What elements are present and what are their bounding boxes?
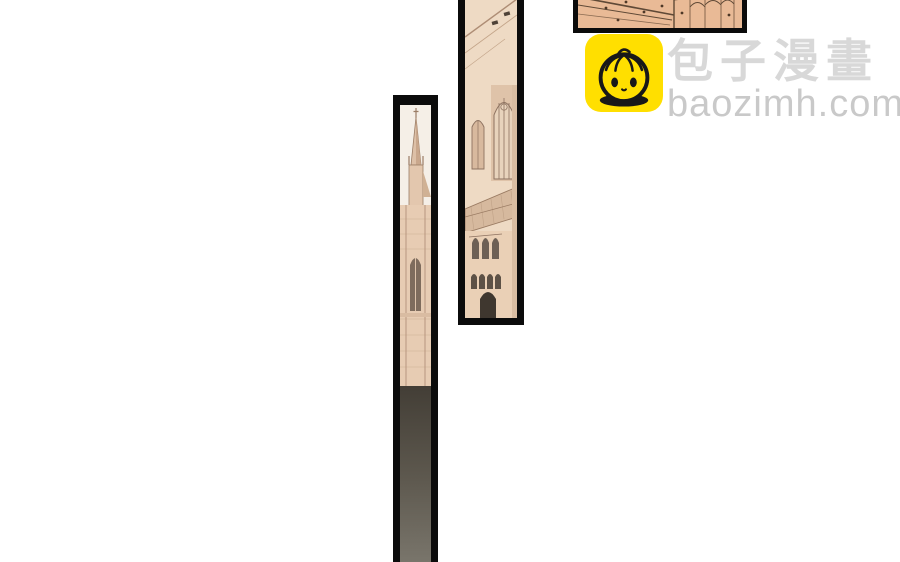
brand-name: 包子漫畫 bbox=[667, 36, 900, 86]
cathedral-spire-artwork bbox=[400, 105, 431, 562]
comic-panel-middle bbox=[458, 0, 524, 325]
building-wall-artwork bbox=[578, 0, 742, 28]
cathedral-tower-artwork bbox=[465, 0, 517, 318]
site-watermark: 包子漫畫 baozimh.com bbox=[585, 34, 900, 122]
comic-panel-top-right bbox=[573, 0, 747, 33]
site-url: baozimh.com bbox=[667, 86, 900, 122]
comic-page: 包子漫畫 baozimh.com bbox=[0, 0, 900, 562]
baozi-bun-mascot-icon bbox=[585, 34, 663, 112]
baozimh-logo bbox=[585, 34, 663, 112]
comic-panel-left bbox=[393, 95, 438, 562]
watermark-text: 包子漫畫 baozimh.com bbox=[667, 34, 900, 122]
